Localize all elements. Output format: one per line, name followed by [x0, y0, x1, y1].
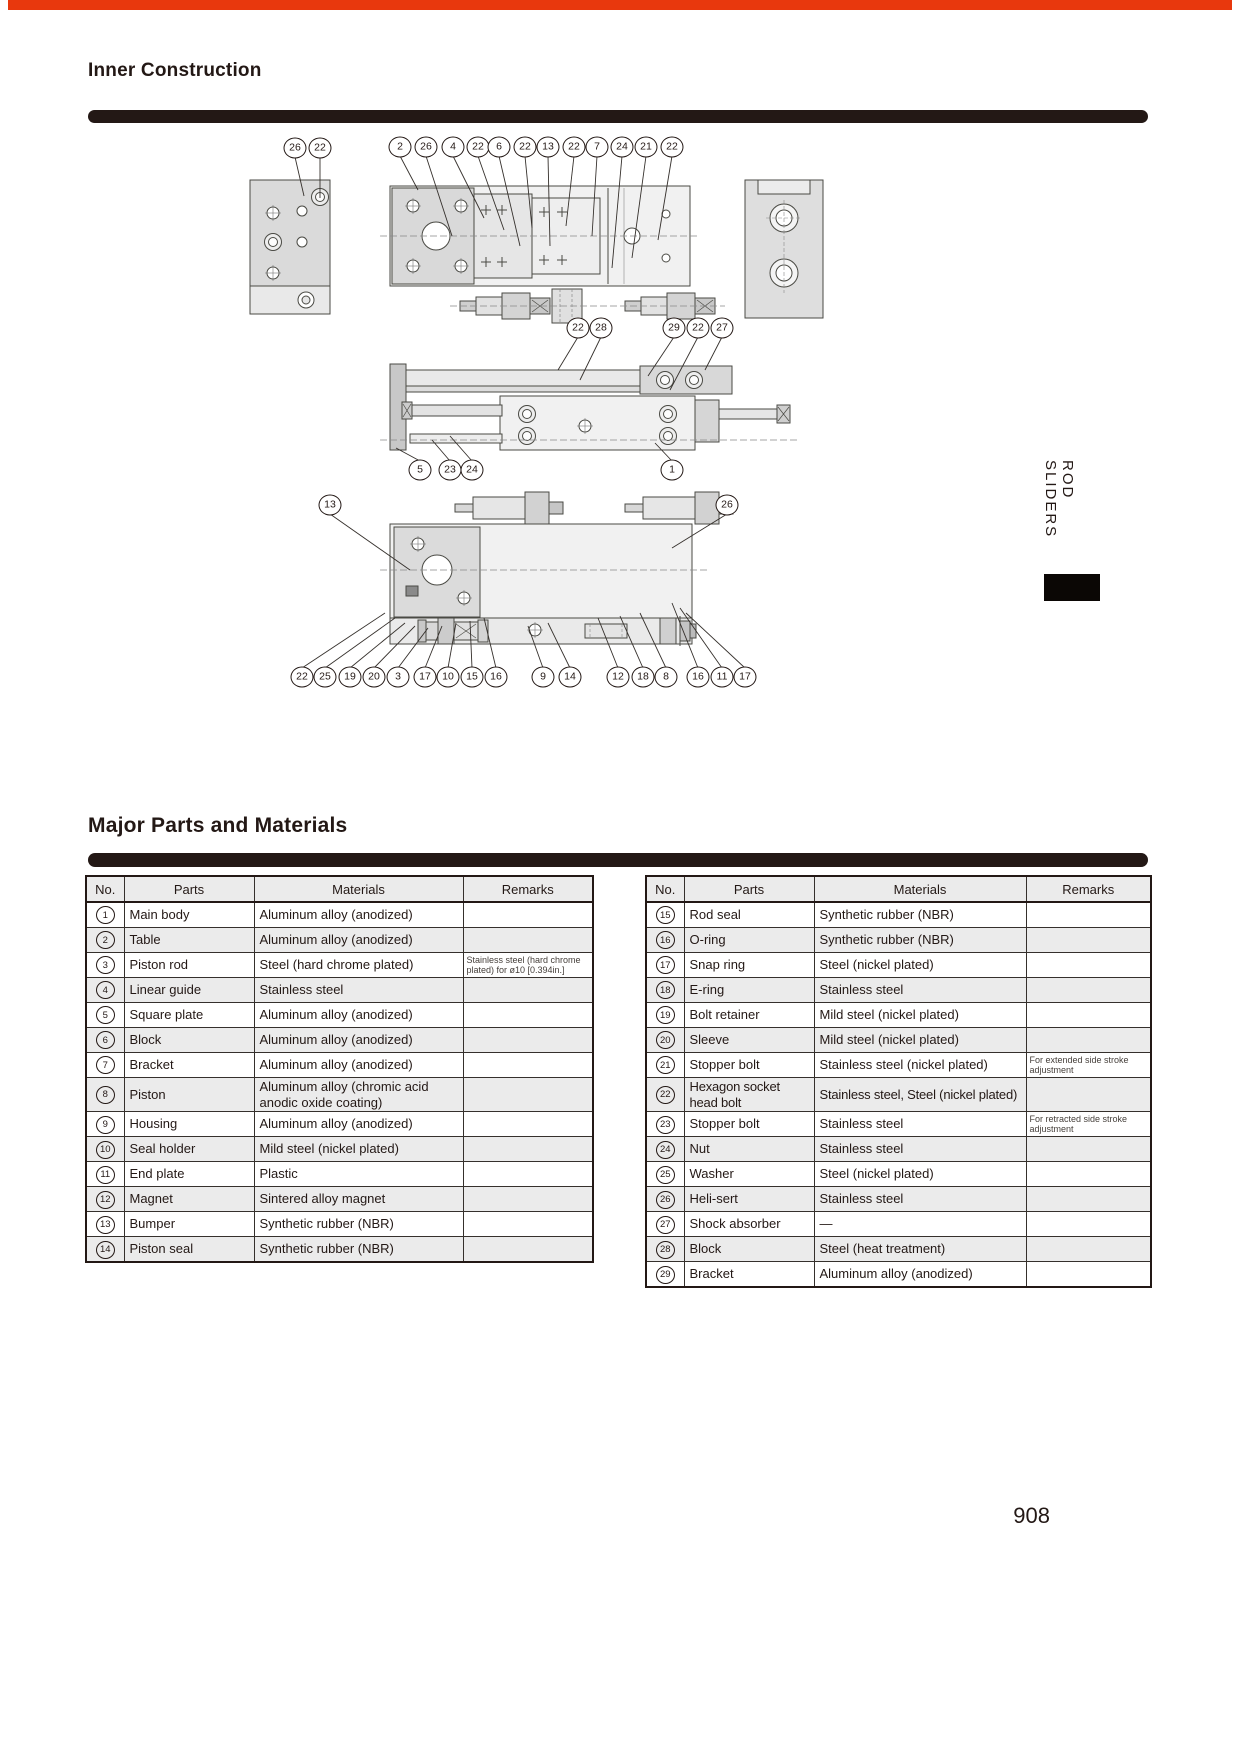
- table-cell: [463, 1003, 593, 1028]
- part-callout-29: 29: [663, 318, 686, 339]
- table-cell: Snap ring: [684, 953, 814, 978]
- table-cell: For retracted side stroke adjustment: [1026, 1112, 1151, 1137]
- part-callout-22: 22: [563, 137, 586, 158]
- part-number-badge: 26: [656, 1191, 675, 1209]
- part-number-badge: 21: [656, 1056, 675, 1074]
- part-callout-26: 26: [716, 495, 739, 516]
- table-cell: 25: [646, 1162, 684, 1187]
- table-cell: Sleeve: [684, 1028, 814, 1053]
- table-row: 24NutStainless steel: [646, 1137, 1151, 1162]
- table-cell: Aluminum alloy (anodized): [814, 1262, 1026, 1288]
- table-cell: [1026, 1162, 1151, 1187]
- part-callout-17: 17: [414, 667, 437, 688]
- part-callout-25: 25: [314, 667, 337, 688]
- part-number-badge: 23: [656, 1116, 675, 1134]
- section-title-inner-construction: Inner Construction: [88, 60, 262, 82]
- part-number-badge: 7: [96, 1056, 115, 1074]
- table-cell: Aluminum alloy (anodized): [254, 1028, 463, 1053]
- table-cell: 10: [86, 1137, 124, 1162]
- table-cell: Synthetic rubber (NBR): [814, 928, 1026, 953]
- part-callout-27: 27: [711, 318, 734, 339]
- table-row: 2TableAluminum alloy (anodized): [86, 928, 593, 953]
- table-cell: 4: [86, 978, 124, 1003]
- part-number-badge: 25: [656, 1166, 675, 1184]
- table-cell: 24: [646, 1137, 684, 1162]
- table-row: 1Main bodyAluminum alloy (anodized): [86, 902, 593, 928]
- table-header-row: No. Parts Materials Remarks: [86, 876, 593, 902]
- table-cell: 20: [646, 1028, 684, 1053]
- table-row: 17Snap ringSteel (nickel plated): [646, 953, 1151, 978]
- part-callout-3: 3: [387, 667, 410, 688]
- section-divider-bar: [88, 853, 1148, 867]
- table-cell: Main body: [124, 902, 254, 928]
- table-row: 8PistonAluminum alloy (chromic acid anod…: [86, 1078, 593, 1112]
- table-cell: [1026, 978, 1151, 1003]
- table-cell: Aluminum alloy (anodized): [254, 928, 463, 953]
- part-callout-15: 15: [461, 667, 484, 688]
- table-cell: [463, 1212, 593, 1237]
- table-cell: [1026, 1237, 1151, 1262]
- part-number-badge: 3: [96, 956, 115, 974]
- table-cell: Stopper bolt: [684, 1053, 814, 1078]
- table-row: 25WasherSteel (nickel plated): [646, 1162, 1151, 1187]
- table-cell: Stainless steel, Steel (nickel plated): [814, 1078, 1026, 1112]
- table-header-row: No. Parts Materials Remarks: [646, 876, 1151, 902]
- table-row: 12MagnetSintered alloy magnet: [86, 1187, 593, 1212]
- table-cell: [463, 1137, 593, 1162]
- part-callout-10: 10: [437, 667, 460, 688]
- table-cell: 12: [86, 1187, 124, 1212]
- part-number-badge: 12: [96, 1191, 115, 1209]
- table-cell: Washer: [684, 1162, 814, 1187]
- table-row: 19Bolt retainerMild steel (nickel plated…: [646, 1003, 1151, 1028]
- table-cell: [463, 1237, 593, 1263]
- part-callout-22: 22: [687, 318, 710, 339]
- table-row: 20SleeveMild steel (nickel plated): [646, 1028, 1151, 1053]
- table-row: 5Square plateAluminum alloy (anodized): [86, 1003, 593, 1028]
- table-cell: [1026, 1212, 1151, 1237]
- table-cell: [1026, 902, 1151, 928]
- table-cell: 29: [646, 1262, 684, 1288]
- table-row: 27Shock absorber—: [646, 1212, 1151, 1237]
- table-cell: [463, 1078, 593, 1112]
- part-number-badge: 18: [656, 981, 675, 999]
- table-cell: Bolt retainer: [684, 1003, 814, 1028]
- part-callout-18: 18: [632, 667, 655, 688]
- table-cell: Steel (hard chrome plated): [254, 953, 463, 978]
- table-cell: Magnet: [124, 1187, 254, 1212]
- table-cell: [1026, 1187, 1151, 1212]
- table-cell: 9: [86, 1112, 124, 1137]
- table-cell: Nut: [684, 1137, 814, 1162]
- table-cell: Shock absorber: [684, 1212, 814, 1237]
- table-cell: [463, 1028, 593, 1053]
- table-cell: [1026, 1078, 1151, 1112]
- part-number-badge: 9: [96, 1116, 115, 1134]
- part-callout-6: 6: [488, 137, 511, 158]
- table-cell: —: [814, 1212, 1026, 1237]
- table-cell: 8: [86, 1078, 124, 1112]
- table-cell: Plastic: [254, 1162, 463, 1187]
- part-callout-28: 28: [590, 318, 613, 339]
- table-row: 14Piston sealSynthetic rubber (NBR): [86, 1237, 593, 1263]
- part-callout-9: 9: [532, 667, 555, 688]
- side-tab-marker: [1044, 574, 1100, 601]
- table-cell: Table: [124, 928, 254, 953]
- part-number-badge: 4: [96, 981, 115, 999]
- table-cell: Bracket: [124, 1053, 254, 1078]
- part-callout-20: 20: [363, 667, 386, 688]
- table-cell: 15: [646, 902, 684, 928]
- part-number-badge: 20: [656, 1031, 675, 1049]
- table-cell: Housing: [124, 1112, 254, 1137]
- table-cell: [463, 1053, 593, 1078]
- table-cell: [1026, 1262, 1151, 1288]
- table-cell: Stainless steel: [254, 978, 463, 1003]
- table-cell: 23: [646, 1112, 684, 1137]
- part-callout-22: 22: [291, 667, 314, 688]
- table-row: 16O-ringSynthetic rubber (NBR): [646, 928, 1151, 953]
- table-cell: For extended side stroke adjustment: [1026, 1053, 1151, 1078]
- table-row: 6BlockAluminum alloy (anodized): [86, 1028, 593, 1053]
- table-cell: E-ring: [684, 978, 814, 1003]
- table-cell: Stainless steel: [814, 1137, 1026, 1162]
- part-number-badge: 8: [96, 1086, 115, 1104]
- table-cell: Aluminum alloy (anodized): [254, 1053, 463, 1078]
- part-number-badge: 5: [96, 1006, 115, 1024]
- table-cell: 2: [86, 928, 124, 953]
- part-number-badge: 19: [656, 1006, 675, 1024]
- part-callout-8: 8: [655, 667, 678, 688]
- col-header-no: No.: [86, 876, 124, 902]
- table-cell: Piston seal: [124, 1237, 254, 1263]
- part-callout-5: 5: [409, 460, 432, 481]
- table-row: 23Stopper boltStainless steelFor retract…: [646, 1112, 1151, 1137]
- part-callout-16: 16: [687, 667, 710, 688]
- table-row: 3Piston rodSteel (hard chrome plated)Sta…: [86, 953, 593, 978]
- table-cell: Mild steel (nickel plated): [814, 1003, 1026, 1028]
- table-cell: Stainless steel (nickel plated): [814, 1053, 1026, 1078]
- col-header-materials: Materials: [814, 876, 1026, 902]
- section-title-major-parts: Major Parts and Materials: [88, 814, 347, 838]
- table-row: 18E-ringStainless steel: [646, 978, 1151, 1003]
- table-cell: [1026, 1028, 1151, 1053]
- table-cell: [463, 1162, 593, 1187]
- table-cell: Square plate: [124, 1003, 254, 1028]
- table-cell: Aluminum alloy (anodized): [254, 902, 463, 928]
- table-row: 15Rod sealSynthetic rubber (NBR): [646, 902, 1151, 928]
- table-cell: Stainless steel (hard chrome plated) for…: [463, 953, 593, 978]
- part-number-badge: 17: [656, 956, 675, 974]
- top-accent-bar: [8, 0, 1232, 10]
- part-callout-4: 4: [442, 137, 465, 158]
- part-number-badge: 14: [96, 1241, 115, 1259]
- table-cell: Stopper bolt: [684, 1112, 814, 1137]
- table-cell: 22: [646, 1078, 684, 1112]
- part-callout-22: 22: [514, 137, 537, 158]
- table-cell: [1026, 928, 1151, 953]
- table-cell: 28: [646, 1237, 684, 1262]
- part-callout-17: 17: [734, 667, 757, 688]
- table-cell: Aluminum alloy (chromic acid anodic oxid…: [254, 1078, 463, 1112]
- part-callout-22: 22: [467, 137, 490, 158]
- col-header-remarks: Remarks: [1026, 876, 1151, 902]
- table-cell: Linear guide: [124, 978, 254, 1003]
- parts-table-right: No. Parts Materials Remarks 15Rod sealSy…: [645, 875, 1152, 1288]
- inner-construction-diagram: 2622226422622132272421222228292227523241…: [80, 118, 1080, 703]
- table-cell: 7: [86, 1053, 124, 1078]
- table-cell: Block: [124, 1028, 254, 1053]
- table-cell: 26: [646, 1187, 684, 1212]
- table-cell: 16: [646, 928, 684, 953]
- part-number-badge: 13: [96, 1216, 115, 1234]
- table-cell: Bracket: [684, 1262, 814, 1288]
- table-cell: Stainless steel: [814, 1187, 1026, 1212]
- col-header-no: No.: [646, 876, 684, 902]
- table-cell: Sintered alloy magnet: [254, 1187, 463, 1212]
- table-cell: O-ring: [684, 928, 814, 953]
- table-cell: Mild steel (nickel plated): [254, 1137, 463, 1162]
- table-cell: 3: [86, 953, 124, 978]
- table-row: 9HousingAluminum alloy (anodized): [86, 1112, 593, 1137]
- table-cell: [463, 902, 593, 928]
- parts-table-left: No. Parts Materials Remarks 1Main bodyAl…: [85, 875, 594, 1263]
- part-number-badge: 27: [656, 1216, 675, 1234]
- part-number-badge: 22: [656, 1086, 675, 1104]
- table-cell: 6: [86, 1028, 124, 1053]
- table-cell: Aluminum alloy (anodized): [254, 1003, 463, 1028]
- part-callout-13: 13: [319, 495, 342, 516]
- table-cell: [1026, 1137, 1151, 1162]
- part-number-badge: 11: [96, 1166, 115, 1184]
- table-row: 10Seal holderMild steel (nickel plated): [86, 1137, 593, 1162]
- part-callout-24: 24: [611, 137, 634, 158]
- col-header-materials: Materials: [254, 876, 463, 902]
- part-callout-21: 21: [635, 137, 658, 158]
- part-callout-26: 26: [284, 138, 307, 159]
- part-callout-7: 7: [586, 137, 609, 158]
- table-cell: Hexagon socket head bolt: [684, 1078, 814, 1112]
- col-header-parts: Parts: [684, 876, 814, 902]
- part-callout-1: 1: [661, 460, 684, 481]
- table-row: 11End platePlastic: [86, 1162, 593, 1187]
- table-cell: Stainless steel: [814, 978, 1026, 1003]
- table-cell: [463, 928, 593, 953]
- part-callout-23: 23: [439, 460, 462, 481]
- part-number-badge: 2: [96, 931, 115, 949]
- table-row: 4Linear guideStainless steel: [86, 978, 593, 1003]
- part-number-badge: 24: [656, 1141, 675, 1159]
- part-callout-26: 26: [415, 137, 438, 158]
- table-cell: Rod seal: [684, 902, 814, 928]
- part-callout-12: 12: [607, 667, 630, 688]
- part-callout-19: 19: [339, 667, 362, 688]
- table-cell: 17: [646, 953, 684, 978]
- table-cell: Heli-sert: [684, 1187, 814, 1212]
- table-cell: Piston rod: [124, 953, 254, 978]
- part-callout-16: 16: [485, 667, 508, 688]
- table-cell: [1026, 1003, 1151, 1028]
- table-cell: [463, 1187, 593, 1212]
- part-number-badge: 29: [656, 1266, 675, 1284]
- table-cell: 27: [646, 1212, 684, 1237]
- part-number-badge: 15: [656, 906, 675, 924]
- table-row: 21Stopper boltStainless steel (nickel pl…: [646, 1053, 1151, 1078]
- table-row: 28BlockSteel (heat treatment): [646, 1237, 1151, 1262]
- part-number-badge: 6: [96, 1031, 115, 1049]
- part-callout-24: 24: [461, 460, 484, 481]
- table-cell: Synthetic rubber (NBR): [254, 1212, 463, 1237]
- part-callout-13: 13: [537, 137, 560, 158]
- table-cell: Piston: [124, 1078, 254, 1112]
- table-cell: Block: [684, 1237, 814, 1262]
- part-callout-14: 14: [559, 667, 582, 688]
- table-row: 13BumperSynthetic rubber (NBR): [86, 1212, 593, 1237]
- machine-line-art: [80, 118, 1080, 703]
- table-row: 26Heli-sertStainless steel: [646, 1187, 1151, 1212]
- table-cell: 21: [646, 1053, 684, 1078]
- table-cell: [463, 1112, 593, 1137]
- table-cell: Mild steel (nickel plated): [814, 1028, 1026, 1053]
- table-cell: 1: [86, 902, 124, 928]
- table-row: 22Hexagon socket head boltStainless stee…: [646, 1078, 1151, 1112]
- page-number: 908: [960, 1503, 1050, 1529]
- part-callout-11: 11: [711, 667, 734, 688]
- side-tab-label-rod-sliders: ROD SLIDERS: [1042, 460, 1076, 572]
- table-row: 7BracketAluminum alloy (anodized): [86, 1053, 593, 1078]
- table-cell: Steel (nickel plated): [814, 1162, 1026, 1187]
- table-cell: Bumper: [124, 1212, 254, 1237]
- table-cell: Steel (nickel plated): [814, 953, 1026, 978]
- table-row: 29BracketAluminum alloy (anodized): [646, 1262, 1151, 1288]
- col-header-parts: Parts: [124, 876, 254, 902]
- table-cell: 11: [86, 1162, 124, 1187]
- part-callout-22: 22: [661, 137, 684, 158]
- col-header-remarks: Remarks: [463, 876, 593, 902]
- table-cell: 14: [86, 1237, 124, 1263]
- table-cell: Seal holder: [124, 1137, 254, 1162]
- table-cell: Synthetic rubber (NBR): [254, 1237, 463, 1263]
- table-cell: Steel (heat treatment): [814, 1237, 1026, 1262]
- part-number-badge: 10: [96, 1141, 115, 1159]
- part-callout-22: 22: [567, 318, 590, 339]
- table-cell: Stainless steel: [814, 1112, 1026, 1137]
- table-cell: Aluminum alloy (anodized): [254, 1112, 463, 1137]
- part-callout-22: 22: [309, 138, 332, 159]
- part-number-badge: 28: [656, 1241, 675, 1259]
- part-callout-2: 2: [389, 137, 412, 158]
- table-cell: 13: [86, 1212, 124, 1237]
- table-cell: 18: [646, 978, 684, 1003]
- part-number-badge: 16: [656, 931, 675, 949]
- table-cell: 5: [86, 1003, 124, 1028]
- table-cell: End plate: [124, 1162, 254, 1187]
- part-number-badge: 1: [96, 906, 115, 924]
- table-cell: [463, 978, 593, 1003]
- table-cell: Synthetic rubber (NBR): [814, 902, 1026, 928]
- table-cell: 19: [646, 1003, 684, 1028]
- table-cell: [1026, 953, 1151, 978]
